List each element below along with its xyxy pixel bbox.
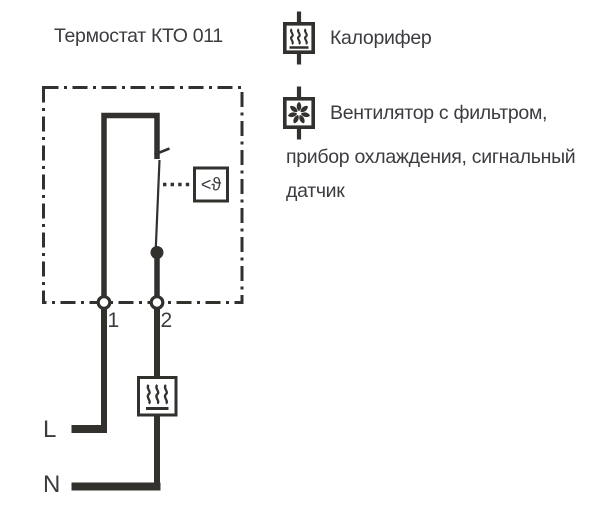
wiring-diagram: <ϑ 1 2 L N <box>0 0 600 532</box>
thermostat-switch <box>151 149 170 260</box>
temperature-sensor-label: <ϑ <box>201 175 222 195</box>
heat-wave-line <box>298 29 300 44</box>
terminal-2 <box>151 297 163 309</box>
heater-icon <box>285 12 313 65</box>
terminal-1 <box>98 297 110 309</box>
terminal-1-label: 1 <box>108 309 120 332</box>
wire-internal-run <box>104 116 157 303</box>
terminal-2-label: 2 <box>161 309 173 332</box>
heat-wave-line <box>291 29 293 44</box>
temperature-sensor: <ϑ <box>195 168 228 201</box>
line-n-label: N <box>43 471 60 498</box>
thermostat-boundary-box <box>44 88 243 303</box>
line-l-label: L <box>43 416 56 443</box>
switch-blade <box>156 160 160 248</box>
fan-icon <box>285 87 313 140</box>
fan-rotor <box>287 102 310 124</box>
heat-wave-line <box>305 29 307 44</box>
page: Термостат КТО 011 <ϑ 1 2 L <box>0 0 600 532</box>
legend-item-heater-label: Калорифер <box>330 27 431 50</box>
legend-item-fan-label-line1: Вентилятор с фильтром, <box>330 102 547 125</box>
legend-item-fan-label-line2: прибор охлаждения, сигнальный <box>286 146 575 169</box>
legend-item-fan-label-line3: датчик <box>286 180 345 203</box>
heater-icon <box>139 378 177 416</box>
